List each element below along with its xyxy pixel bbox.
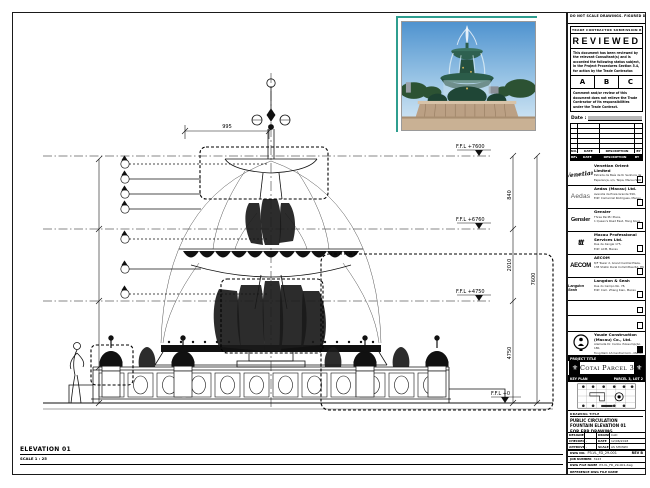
consultant-name: Aedas (Macau) Ltd. bbox=[594, 187, 644, 191]
dimension-left bbox=[96, 156, 102, 406]
elevation-title: ELEVATION 01 bbox=[20, 446, 563, 453]
consultant-name: Gensler bbox=[594, 210, 644, 214]
stamp-option-a: A bbox=[571, 76, 595, 88]
consultant-checkbox bbox=[637, 268, 644, 275]
consultant-name: Venetian Orient Limited bbox=[594, 164, 644, 173]
level-label-1: F.F.L +7600 bbox=[456, 144, 485, 150]
dwg-file-name: P3-VL_FD_29-001.dwg bbox=[599, 463, 632, 467]
stamp-status-options: A B C bbox=[571, 76, 642, 89]
elevation-callout: ELEVATION 01 SCALE 1 : 25 bbox=[20, 446, 563, 465]
job-number: 3123 bbox=[594, 457, 602, 461]
stamp-option-b: B bbox=[595, 76, 619, 88]
key-plan-map bbox=[569, 383, 644, 409]
dwg-number: P3-VL_FD_29-001 bbox=[587, 451, 616, 455]
youde-emblem-icon bbox=[573, 334, 589, 352]
stamp-title: REVIEWED bbox=[571, 34, 642, 49]
level-label-3: F.F.L +4750 bbox=[456, 289, 485, 295]
dim-seg1: 840 bbox=[507, 190, 513, 200]
level-label-4: F.F.L +0 bbox=[491, 391, 510, 397]
stamp-body-2: Comment and/or review of this document d… bbox=[571, 89, 642, 111]
drawing-title-label: DRAWING TITLE bbox=[570, 412, 643, 417]
consultant-checkbox bbox=[637, 199, 644, 206]
contractor-checkbox bbox=[637, 346, 644, 353]
consultant-checkbox bbox=[637, 222, 644, 229]
consultant-checkbox bbox=[637, 307, 644, 314]
date-line bbox=[588, 116, 642, 121]
drawing-title-box: DRAWING TITLE PUBLIC CIRCULATION FOUNTAI… bbox=[568, 411, 645, 433]
drawing-sheet: F.F.L +7600 F.F.L +6760 F.F.L +4750 F.F.… bbox=[0, 0, 650, 488]
stamp-option-c: C bbox=[619, 76, 642, 88]
consultant-langdon-seah: Langdon Seah Langdon & Seah Rua do Campo… bbox=[568, 278, 645, 301]
revision-footer: REV DATE DESCRIPTION BY bbox=[571, 155, 642, 160]
statue-figures bbox=[139, 199, 410, 367]
detail-boxes bbox=[91, 147, 553, 410]
dimension-top: 995 bbox=[182, 124, 272, 139]
scale-figure bbox=[70, 343, 84, 404]
contractor-youde: Youde Construction (Macau) Co., Ltd. Ala… bbox=[568, 332, 645, 356]
dim-top: 995 bbox=[222, 124, 232, 130]
title-block: DO NOT SCALE DRAWINGS. FIGURED DIMENSION… bbox=[567, 12, 646, 475]
review-stamp: TRADE CONTRACTOR SUBMISSION REVIEW REVIE… bbox=[570, 26, 643, 112]
fleur-de-lis-icon: ⚜ bbox=[570, 362, 580, 374]
consultant-empty-2 bbox=[568, 316, 645, 332]
level-markers: F.F.L +7600 F.F.L +6760 F.F.L +4750 F.F.… bbox=[456, 144, 521, 403]
consultant-empty-1 bbox=[568, 301, 645, 317]
consultant-mps: ttt Macau Professional Services Ltd. Rua… bbox=[568, 232, 645, 255]
consultant-checkbox bbox=[637, 176, 644, 183]
gensler-logo: Gensler bbox=[568, 209, 593, 231]
project-name: Cotai Parcel 3 bbox=[580, 364, 634, 372]
consultant-gensler: Gensler Gensler Three Pacific Place, 1 Q… bbox=[568, 209, 645, 232]
sheet-note: DO NOT SCALE DRAWINGS. FIGURED DIMENSION… bbox=[568, 13, 645, 24]
elevation-rule-thin bbox=[20, 464, 563, 465]
key-plan bbox=[568, 382, 645, 411]
contractor-name: Youde Construction (Macau) Co., Ltd. bbox=[594, 333, 644, 342]
stamp-body-1: This document has been reviewed by the r… bbox=[571, 49, 642, 76]
date-label: Date : bbox=[571, 116, 586, 121]
consultant-name: Macau Professional Services Ltd. bbox=[594, 233, 644, 242]
revision-table: NO. DATE DESCRIPTION BY REV DATE DESCRIP… bbox=[570, 123, 643, 161]
aecom-logo: AECOM bbox=[568, 255, 593, 277]
consultant-name: Langdon & Seah bbox=[594, 279, 644, 283]
mps-logo: ttt bbox=[568, 232, 593, 254]
stamp-header: TRADE CONTRACTOR SUBMISSION REVIEW bbox=[571, 27, 642, 34]
consultant-checkbox bbox=[637, 245, 644, 252]
dim-total: 7600 bbox=[531, 273, 537, 286]
consultant-aecom: AECOM AECOM 8/F Tower 2, Grand Central P… bbox=[568, 255, 645, 278]
youde-logo bbox=[568, 332, 593, 355]
venetian-logo: Venetian bbox=[567, 161, 594, 185]
aedas-logo: Aedas bbox=[568, 186, 593, 208]
consultant-venetian: Venetian Venetian Orient Limited Estrada… bbox=[568, 163, 645, 186]
fountain-photo bbox=[401, 21, 536, 131]
consultant-name: AECOM bbox=[594, 256, 644, 260]
level-label-2: F.F.L +6760 bbox=[456, 217, 485, 223]
credits-table: DESIGNED DRAWN CAD CHECKED - DATE 12/06/… bbox=[568, 433, 645, 451]
consultant-checkbox bbox=[637, 291, 644, 298]
fleur-de-lis-icon: ⚜ bbox=[634, 362, 644, 374]
consultant-aedas: Aedas Aedas (Macau) Ltd. Avenida da Prai… bbox=[568, 186, 645, 209]
langdon-seah-logo: Langdon Seah bbox=[568, 278, 593, 300]
stamp-date-row: Date : bbox=[568, 114, 645, 123]
dim-seg3: 4750 bbox=[507, 347, 513, 360]
elevation-scale: SCALE 1 : 25 bbox=[20, 456, 563, 461]
dwg-revision: REV B bbox=[632, 451, 643, 455]
dimension-right: 840 2010 4750 7600 bbox=[507, 153, 540, 406]
project-name-box: ⚜ Cotai Parcel 3 ⚜ bbox=[568, 361, 645, 376]
dim-seg2: 2010 bbox=[507, 259, 513, 272]
reference-file-row: REFERENCE DWG FILE NAME bbox=[568, 469, 645, 474]
callout-bubbles bbox=[121, 156, 268, 298]
consultant-checkbox bbox=[637, 322, 644, 329]
reference-photo bbox=[396, 16, 537, 132]
